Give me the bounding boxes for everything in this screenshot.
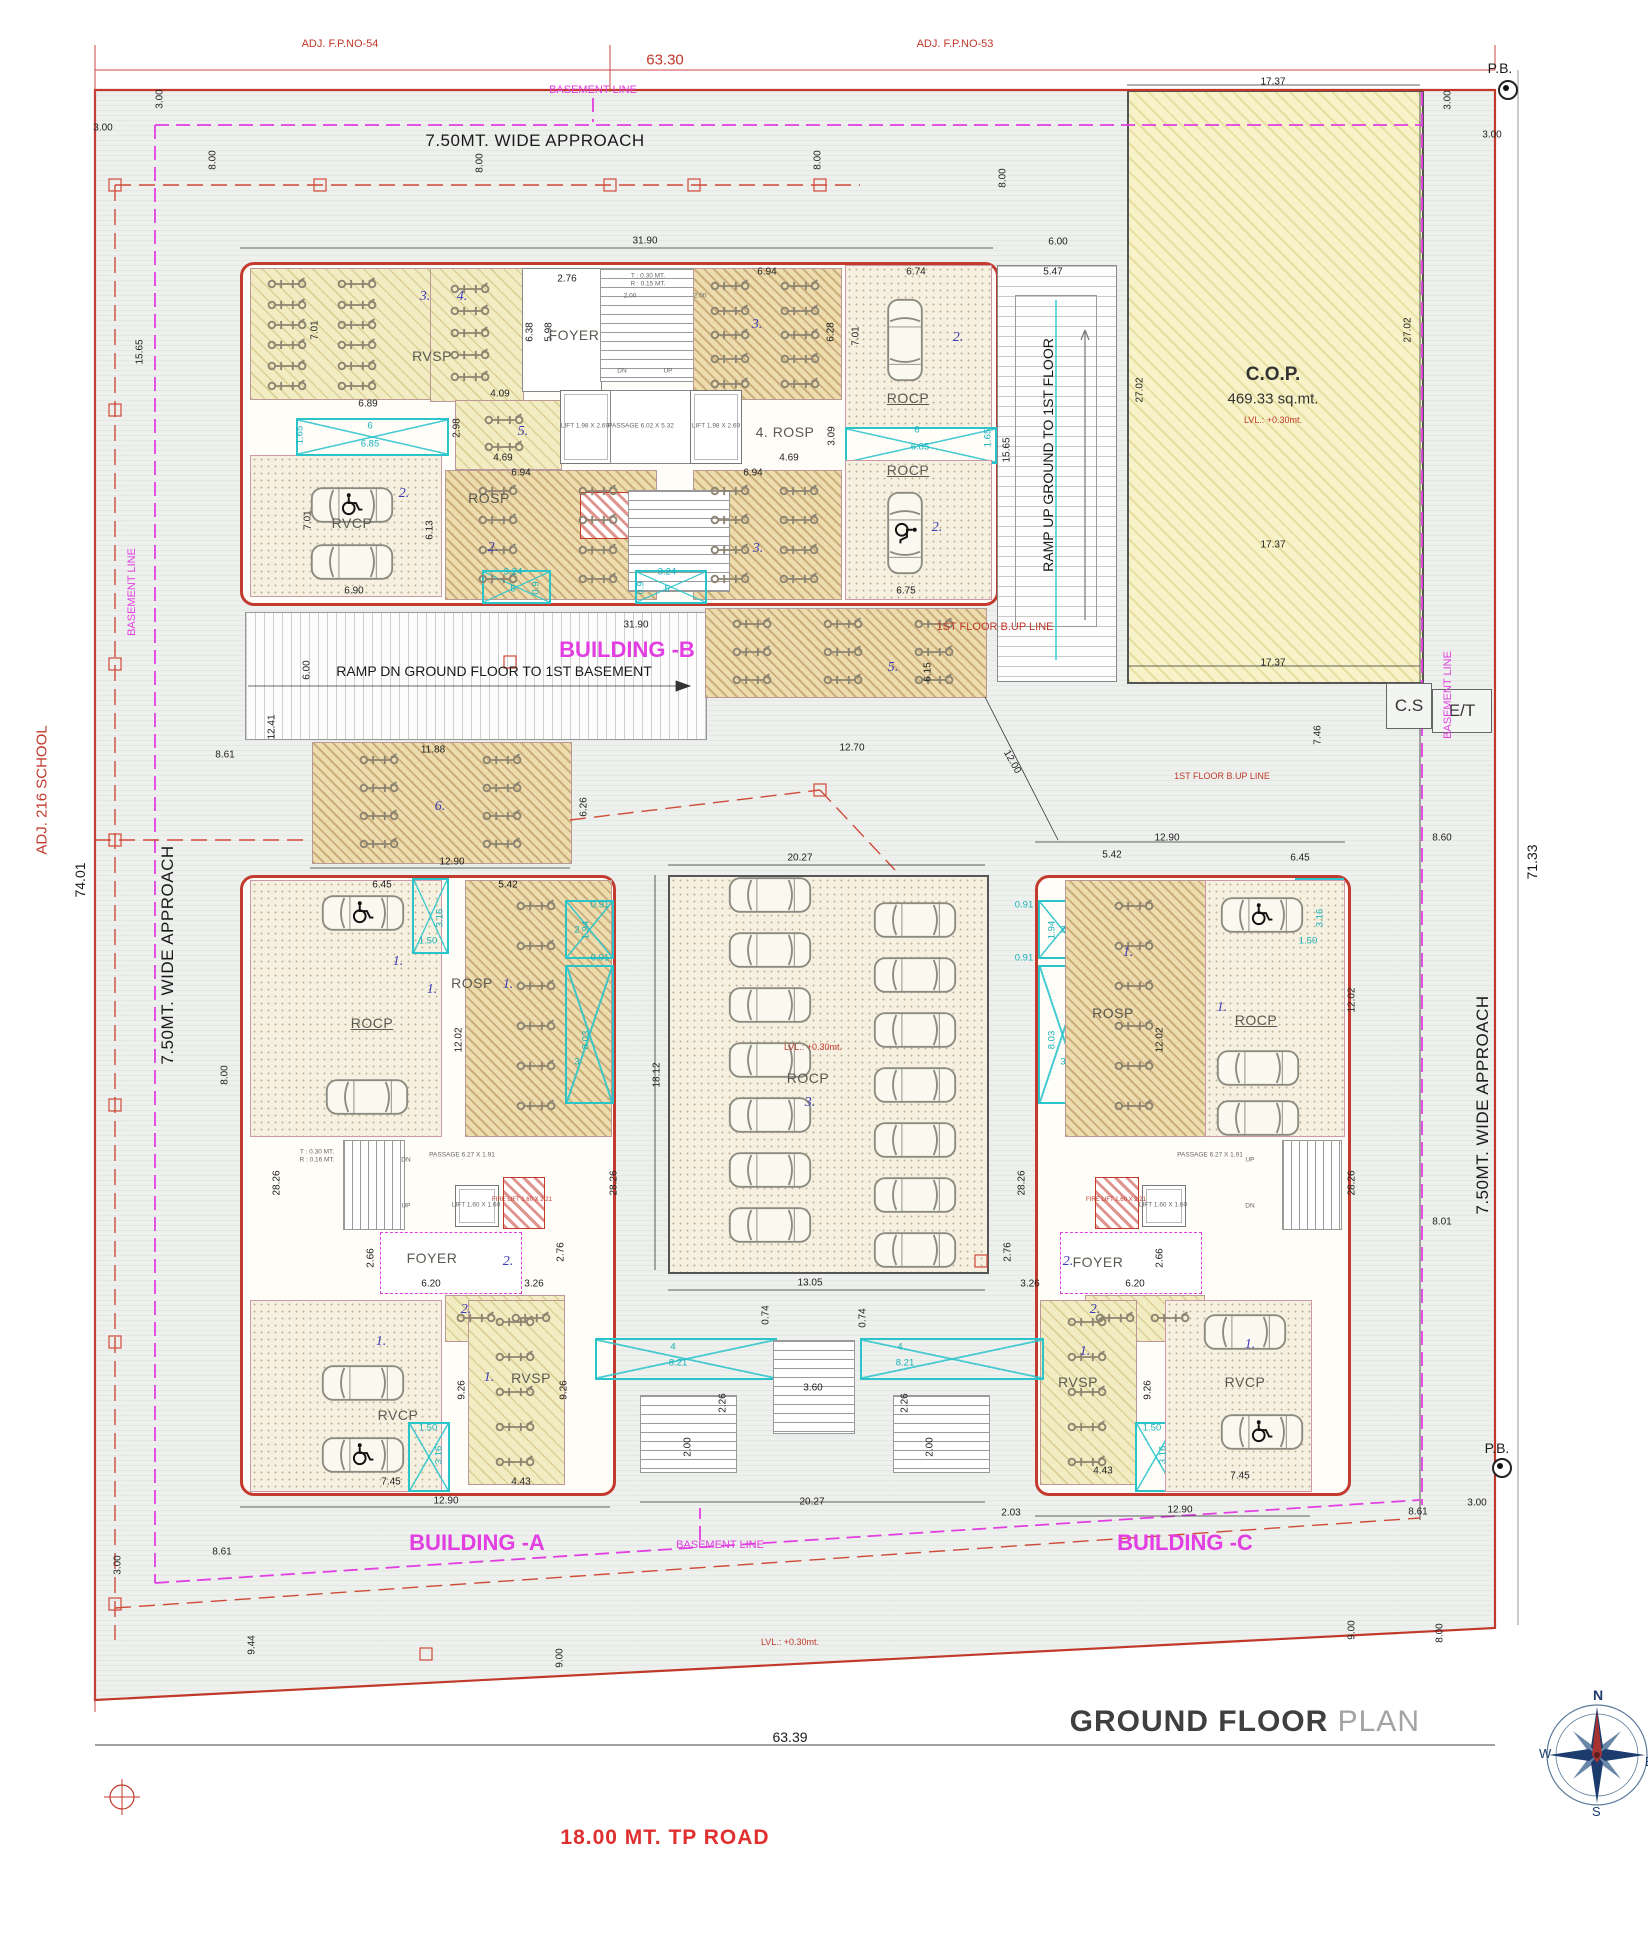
annotation: 20.27: [799, 1497, 824, 1508]
annotation: 3: [1060, 1057, 1065, 1068]
annotation: 6.45: [372, 880, 391, 891]
scooter-icon: [821, 617, 865, 636]
annotation: ROCP: [351, 1015, 393, 1031]
scooter-icon: [912, 645, 956, 664]
annotation: 7.45: [1230, 1471, 1249, 1482]
annotation: 3.: [753, 541, 764, 557]
annotation: 17.37: [1260, 540, 1285, 551]
annotation: 28.26: [609, 1170, 620, 1195]
scooter-icon: [912, 673, 956, 692]
annotation: LIFT 1.98 X 2.69: [561, 423, 609, 430]
annotation: 0.91: [591, 953, 610, 964]
scooter-icon: [357, 753, 401, 772]
annotation: 6.94: [757, 267, 776, 278]
annotation: ROSP: [468, 490, 510, 506]
annotation: 7.45: [381, 1477, 400, 1488]
annotation: 3.16: [1158, 1446, 1169, 1465]
annotation: 18.12: [652, 1062, 663, 1087]
annotation: BASEMENT LINE: [549, 84, 637, 96]
annotation: PASSAGE 6.27 X 1.91: [1177, 1152, 1243, 1159]
annotation: 3.60: [803, 1383, 822, 1394]
scooter-icon: [335, 298, 379, 317]
annotation: 8.03: [581, 1031, 592, 1050]
annotation: 0.9: [531, 581, 542, 594]
annotation: 31.90: [623, 620, 648, 631]
annotation: 2.66: [366, 1248, 377, 1267]
annotation: 17.37: [1260, 77, 1285, 88]
scooter-icon: [335, 318, 379, 337]
annotation: 1.50: [1143, 1423, 1162, 1434]
annotation: 8.03: [1047, 1031, 1058, 1050]
annotation: 5.42: [1102, 850, 1121, 861]
scooter-icon: [730, 617, 774, 636]
annotation: 6: [367, 421, 372, 432]
scooter-icon: [514, 1019, 558, 1038]
annotation: 4.43: [1093, 1466, 1112, 1477]
annotation: 8.61: [1408, 1507, 1427, 1518]
car-icon: [872, 955, 958, 995]
scooter-icon: [1112, 1019, 1156, 1038]
scooter-icon: [778, 352, 822, 371]
annotation: 17.37: [1260, 658, 1285, 669]
annotation: 1ST FLOOR B.UP LINE: [937, 621, 1054, 633]
annotation: 6.13: [425, 520, 436, 539]
annotation: 3.16: [1315, 909, 1326, 928]
car-icon: [872, 900, 958, 940]
cs-box: C.S: [1386, 683, 1432, 729]
annotation: 4.69: [779, 453, 798, 464]
annotation: 28.26: [1347, 1170, 1358, 1195]
annotation: ROCP: [887, 390, 929, 406]
scooter-icon: [514, 1059, 558, 1078]
annotation: LIFT 1.98 X 2.69: [692, 423, 740, 430]
annotation: 6.28: [826, 322, 837, 341]
accessible-car-icon: [320, 893, 406, 933]
accessible-car-icon: [885, 490, 925, 576]
annotation: ROSP: [1092, 1005, 1134, 1021]
scooter-icon: [1112, 1059, 1156, 1078]
annotation: FOYER: [407, 1250, 458, 1266]
annotation: 3.: [420, 289, 431, 305]
annotation: 6.94: [743, 468, 762, 479]
compass-n: N: [1593, 1688, 1603, 1703]
scooter-icon: [1065, 1315, 1109, 1334]
annotation: 15.65: [135, 339, 146, 364]
scooter-icon: [708, 484, 752, 503]
annotation: 3.00: [93, 123, 112, 134]
scooter-icon: [493, 1315, 537, 1334]
annotation: 9.00: [555, 1648, 566, 1667]
annotation: 28.26: [1017, 1170, 1028, 1195]
annotation: FIRE LIFT 1.60 X 2.21: [492, 1197, 552, 1203]
annotation: 8.00: [220, 1065, 231, 1084]
annotation: 12.02: [454, 1027, 465, 1052]
annotation: 1.94: [581, 921, 592, 940]
scooter-icon: [493, 1350, 537, 1369]
annotation: 9.26: [1143, 1380, 1154, 1399]
scooter-icon: [1065, 1420, 1109, 1439]
annotation: 6.90: [344, 586, 363, 597]
annotation: 8.00: [813, 150, 824, 169]
annotation: RVSP: [1058, 1374, 1098, 1390]
annotation: 1.: [1080, 1344, 1091, 1360]
annotation: 2.: [503, 1254, 514, 1270]
accessible-car-icon: [320, 1435, 406, 1475]
annotation: 3.16: [434, 1446, 445, 1465]
annotation: FOYER: [1073, 1254, 1124, 1270]
annotation: 2.: [1090, 1302, 1101, 1318]
annotation: 1.94: [1047, 921, 1058, 940]
annotation: 74.01: [72, 862, 88, 897]
annotation: 12.90: [439, 857, 464, 868]
annotation: 5: [510, 584, 515, 595]
annotation: LIFT 1.60 X 1.60: [1139, 1202, 1187, 1209]
annotation: 6.20: [1125, 1279, 1144, 1290]
annotation: 6.00: [1048, 237, 1067, 248]
annotation: 27.02: [1135, 377, 1146, 402]
annotation: 12.02: [1155, 1027, 1166, 1052]
annotation: 3.00: [113, 1555, 124, 1574]
scooter-icon: [265, 359, 309, 378]
scooter-icon: [778, 279, 822, 298]
scooter-icon: [448, 326, 492, 345]
pb-marker-bottom-icon: [1492, 1458, 1512, 1478]
accessible-car-icon: [1219, 895, 1305, 935]
scooter-icon: [493, 1420, 537, 1439]
annotation: 63.39: [772, 1729, 807, 1745]
annotation: 0.91: [1015, 953, 1034, 964]
annotation: DN: [401, 1157, 410, 1164]
annotation: PASSAGE 6.27 X 1.91: [429, 1152, 495, 1159]
annotation: 1.65: [295, 426, 306, 445]
annotation: UP: [401, 1203, 410, 1210]
road-label: 18.00 MT. TP ROAD: [560, 1826, 769, 1850]
scooter-icon: [514, 899, 558, 918]
annotation: 63.30: [646, 52, 684, 69]
annotation: 5.42: [498, 880, 517, 891]
annotation: 8.00: [998, 168, 1009, 187]
annotation: 5.47: [1043, 267, 1062, 278]
scooter-icon: [1148, 1311, 1192, 1330]
car-icon: [872, 1120, 958, 1160]
car-icon: [727, 1205, 813, 1245]
annotation: 1.50: [1299, 936, 1318, 947]
annotation: 9.00: [1347, 1620, 1358, 1639]
annotation: 6.38: [525, 322, 536, 341]
annotation: 3.00: [1467, 1498, 1486, 1509]
scooter-icon: [708, 543, 752, 562]
annotation: 1.: [376, 1334, 387, 1350]
annotation: ROSP: [451, 975, 493, 991]
annotation: 2.: [932, 520, 943, 536]
annotation: 3.00: [1482, 130, 1501, 141]
et-box: E/T: [1432, 689, 1492, 733]
car-icon: [872, 1010, 958, 1050]
car-icon: [872, 1230, 958, 1270]
annotation: 8.00: [208, 150, 219, 169]
annotation: LVL.: +0.30mt.: [784, 1042, 842, 1052]
annotation: 1.: [1245, 1337, 1256, 1353]
annotation: 31.90: [632, 236, 657, 247]
annotation: 12.90: [433, 1496, 458, 1507]
annotation: 13.05: [797, 1278, 822, 1289]
scooter-icon: [335, 359, 379, 378]
scooter-icon: [493, 1385, 537, 1404]
scooter-icon: [576, 572, 620, 591]
scooter-icon: [265, 298, 309, 317]
annotation: P.B.: [1485, 1440, 1510, 1456]
scooter-icon: [778, 377, 822, 396]
annotation: 5.: [888, 660, 899, 676]
car-icon: [727, 985, 813, 1025]
annotation: 4.: [457, 289, 468, 305]
annotation: 2: [574, 925, 579, 936]
scooter-icon: [821, 645, 865, 664]
annotation: 3.26: [1020, 1279, 1039, 1290]
scooter-icon: [265, 318, 309, 337]
annotation: 4: [670, 1342, 675, 1353]
scooter-icon: [357, 809, 401, 828]
annotation: 8.21: [896, 1358, 915, 1369]
annotation: 1.: [484, 1370, 495, 1386]
annotation: 1.: [393, 954, 404, 970]
scooter-icon: [708, 279, 752, 298]
scooter-icon: [708, 572, 752, 591]
compass-w: W: [1539, 1746, 1552, 1761]
annotation: 12.70: [839, 743, 864, 754]
annotation: 2.76: [557, 274, 576, 285]
annotation: 2.26: [718, 1393, 729, 1412]
annotation: 9.26: [559, 1380, 570, 1399]
annotation: P.B.: [1488, 60, 1513, 76]
plan-title-main: GROUND FLOOR: [1070, 1705, 1329, 1738]
scooter-icon: [448, 370, 492, 389]
car-icon: [727, 1150, 813, 1190]
annotation: 1.50: [419, 936, 438, 947]
annotation: 2.00: [925, 1437, 936, 1456]
annotation: 2.: [953, 330, 964, 346]
annotation: 71.33: [1524, 844, 1540, 879]
scooter-icon: [708, 328, 752, 347]
annotation: 3: [574, 1057, 579, 1068]
scooter-icon: [777, 543, 821, 562]
annotation: 2.00: [624, 293, 637, 300]
annotation: 3.26: [524, 1279, 543, 1290]
scooter-icon: [576, 513, 620, 532]
annotation: 1ST FLOOR B.UP LINE: [1174, 771, 1270, 781]
annotation: RVSP: [412, 348, 452, 364]
annotation: 2.03: [1001, 1508, 1020, 1519]
plan-title: GROUND FLOOR PLAN: [1030, 1705, 1420, 1739]
scooter-icon: [708, 304, 752, 323]
annotation: FIRE LIFT 1.60 X 2.21: [1086, 1197, 1146, 1203]
floor-plan-canvas: C.O.P. 469.33 sq.mt. LVL.: +0.30mt.: [0, 0, 1648, 1936]
annotation: 2.: [399, 486, 410, 502]
annotation: 5.: [518, 424, 529, 440]
annotation: 12.02: [1347, 987, 1358, 1012]
annotation: ROCP: [887, 462, 929, 478]
annotation: BASEMENT LINE: [676, 1539, 764, 1551]
scooter-icon: [480, 753, 524, 772]
cop-level: LVL.: +0.30mt.: [1244, 415, 1302, 425]
annotation: 2.76: [556, 1242, 567, 1261]
car-icon: [324, 1077, 410, 1117]
scooter-icon: [357, 837, 401, 856]
plan-title-sub: PLAN: [1328, 1705, 1420, 1738]
annotation: 0.74: [858, 1308, 869, 1327]
annotation: T : 0.30 MT.: [631, 273, 665, 280]
scooter-icon: [1112, 979, 1156, 998]
annotation: ADJ. F.P.NO-53: [917, 38, 994, 50]
annotation: 6.75: [896, 586, 915, 597]
scooter-icon: [335, 379, 379, 398]
annotation: 3.24: [658, 567, 677, 578]
scooter-icon: [514, 979, 558, 998]
annotation: 8.00: [1435, 1623, 1446, 1642]
scooter-icon: [576, 484, 620, 503]
scooter-icon: [265, 338, 309, 357]
annotation: 6.89: [358, 399, 377, 410]
annotation: 1.: [503, 977, 514, 993]
annotation: DN: [1245, 1203, 1254, 1210]
annotation: 8.01: [1432, 1217, 1451, 1228]
annotation: 2.76: [1003, 1242, 1014, 1261]
pb-marker-top-icon: [1498, 80, 1518, 100]
car-icon: [872, 1065, 958, 1105]
annotation: ROCP: [1235, 1012, 1277, 1028]
scooter-icon: [480, 781, 524, 800]
annotation: LVL.: +0.30mt.: [761, 1637, 819, 1647]
annotation: 12.90: [1154, 833, 1179, 844]
annotation: 6.: [435, 799, 446, 815]
annotation: 7.46: [1313, 725, 1324, 744]
scooter-icon: [480, 809, 524, 828]
annotation: 7.01: [310, 320, 321, 339]
car-icon: [872, 1175, 958, 1215]
annotation: 8.21: [669, 1358, 688, 1369]
annotation: 2.00: [683, 1437, 694, 1456]
annotation: 4: [897, 1342, 902, 1353]
annotation: FOYER: [549, 327, 600, 343]
annotation: 15.65: [1002, 437, 1013, 462]
annotation: 12.90: [1167, 1505, 1192, 1516]
annotation: 3.: [805, 1095, 816, 1111]
annotation: RVSP: [511, 1370, 551, 1386]
annotation: 3.00: [155, 89, 166, 108]
annotation: RAMP UP GROUND TO 1ST FLOOR: [1040, 338, 1056, 572]
annotation: 9.26: [457, 1380, 468, 1399]
annotation: 4.09: [490, 389, 509, 400]
scooter-icon: [514, 1099, 558, 1118]
accessible-car-icon: [1219, 1412, 1305, 1452]
scooter-icon: [708, 377, 752, 396]
scooter-icon: [448, 348, 492, 367]
annotation: T : 0.30 MT.: [300, 1149, 334, 1156]
annotation: 0.74: [761, 1305, 772, 1324]
annotation: BUILDING -A: [409, 1530, 545, 1556]
scooter-icon: [1112, 899, 1156, 918]
annotation: 6: [914, 425, 919, 436]
annotation: 9.44: [247, 1635, 258, 1654]
annotation: 6.85: [361, 439, 380, 450]
annotation: 12.41: [267, 714, 278, 739]
scooter-icon: [265, 379, 309, 398]
annotation: RVCP: [1225, 1374, 1266, 1390]
annotation: ADJ. F.P.NO-54: [302, 38, 379, 50]
annotation: 0.91: [1015, 900, 1034, 911]
scooter-icon: [357, 781, 401, 800]
scooter-icon: [821, 673, 865, 692]
car-icon: [727, 1095, 813, 1135]
annotation: RAMP DN GROUND FLOOR TO 1ST BASEMENT: [336, 663, 652, 679]
annotation: UP: [663, 368, 672, 375]
scooter-icon: [448, 282, 492, 301]
annotation: 6.20: [421, 1279, 440, 1290]
annotation: 1.: [1123, 945, 1134, 961]
annotation: 6.45: [1290, 853, 1309, 864]
annotation: 0.9: [636, 581, 647, 594]
annotation: 6.15: [923, 662, 934, 681]
annotation: ROCP: [787, 1070, 829, 1086]
annotation: 6.00: [302, 660, 313, 679]
car-icon: [727, 930, 813, 970]
annotation: 1.65: [983, 429, 994, 448]
scooter-icon: [335, 277, 379, 296]
annotation: 6.94: [511, 468, 530, 479]
annotation: RVCP: [332, 515, 373, 531]
scooter-icon: [1112, 939, 1156, 958]
annotation: 3.09: [827, 426, 838, 445]
scooter-icon: [480, 837, 524, 856]
scooter-icon: [730, 673, 774, 692]
annotation: 7.01: [851, 326, 862, 345]
scooter-icon: [514, 939, 558, 958]
annotation: R : 0.16 MT.: [299, 1157, 334, 1164]
annotation: BUILDING -B: [559, 637, 695, 663]
scooter-icon: [777, 484, 821, 503]
annotation: 2.: [461, 1302, 472, 1318]
annotation: 8.60: [1432, 833, 1451, 844]
scooter-icon: [730, 645, 774, 664]
scooter-icon: [448, 304, 492, 323]
scooter-icon: [708, 513, 752, 532]
annotation: 2: [1060, 925, 1065, 936]
annotation: RVCP: [378, 1407, 419, 1423]
annotation: 6.26: [579, 797, 590, 816]
annotation: BASEMENT LINE: [126, 548, 138, 636]
annotation: 27.02: [1403, 317, 1414, 342]
annotation: 6.85: [911, 442, 930, 453]
annotation: 2.98: [452, 418, 463, 437]
annotation: ADJ. 216 SCHOOL: [34, 725, 51, 854]
annotation: 2.26: [900, 1393, 911, 1412]
annotation: 20.27: [787, 853, 812, 864]
annotation: 7.50MT. WIDE APPROACH: [158, 845, 178, 1064]
cop-title: C.O.P.: [1246, 364, 1301, 386]
annotation: BASEMENT LINE: [1442, 651, 1454, 739]
annotation: 4. ROSP: [756, 424, 815, 440]
scooter-icon: [708, 352, 752, 371]
survey-marker-icon: [100, 1775, 144, 1819]
scooter-icon: [265, 277, 309, 296]
annotation: 1.50: [419, 1423, 438, 1434]
car-icon: [320, 1363, 406, 1403]
scooter-icon: [1112, 1099, 1156, 1118]
scooter-icon: [335, 338, 379, 357]
cop-area: 469.33 sq.mt.: [1228, 391, 1319, 408]
annotation: 3.24: [504, 567, 523, 578]
annotation: 11.88: [421, 745, 445, 756]
